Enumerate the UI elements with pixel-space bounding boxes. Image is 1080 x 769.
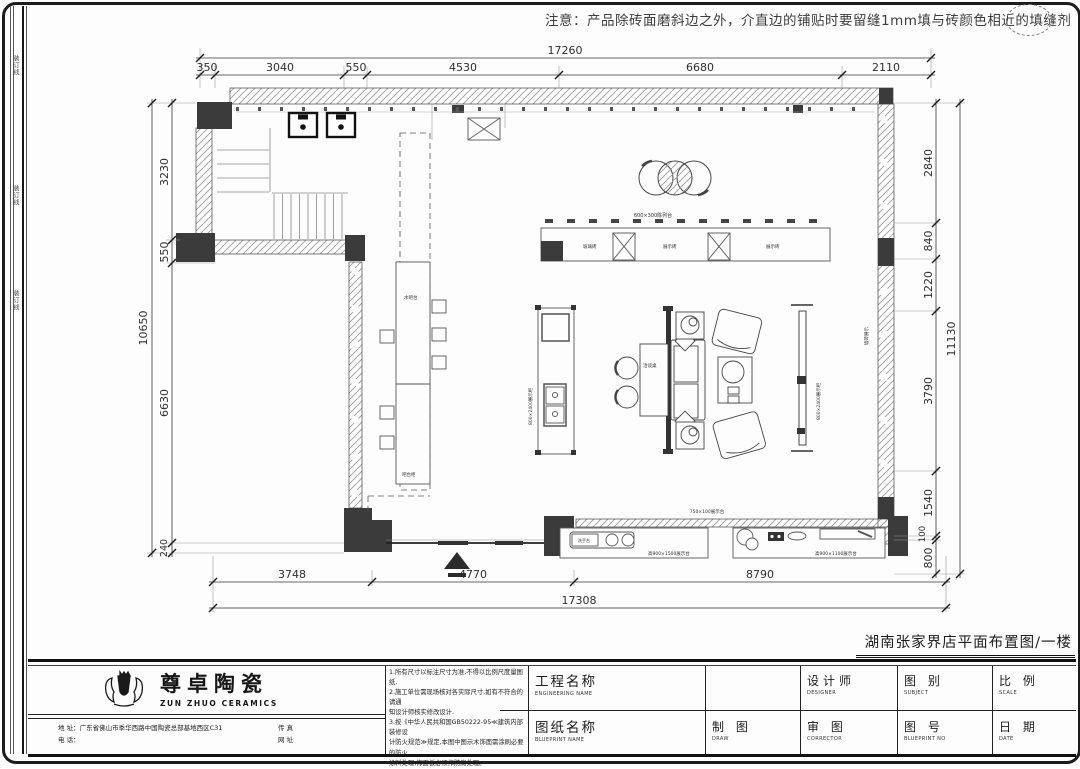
field-designer: 设计师 DESIGNER — [807, 672, 855, 696]
svg-text:350: 350 — [197, 61, 218, 74]
svg-text:550: 550 — [346, 61, 367, 74]
label-bottom-right: 高900×1100展示台 — [815, 550, 857, 557]
dim-top-overall: 17260 — [548, 44, 583, 57]
tall-display-cabinet — [535, 305, 576, 455]
label-sink-box: 洗手台 — [578, 537, 590, 543]
furniture-group — [615, 306, 766, 460]
label-water-bar: 水吧台 — [404, 294, 418, 301]
basin-display — [327, 113, 355, 137]
drawing-title: 湖南张家界店平面布置图/一楼 — [856, 631, 1075, 658]
svg-text:840: 840 — [922, 231, 935, 252]
svg-text:8790: 8790 — [746, 568, 774, 581]
label-counter-caption: 600×300陈列台 — [634, 212, 672, 219]
field-scale: 比 例 SCALE — [999, 672, 1039, 696]
svg-text:550: 550 — [158, 242, 171, 263]
label-tall-cabinet: 800×2400展示柜 — [527, 387, 534, 425]
field-date: 日 期 DATE — [999, 718, 1039, 742]
staircase — [217, 128, 348, 239]
svg-text:2110: 2110 — [872, 61, 900, 74]
field-project-name: 工程名称 ENGINEERING NAME — [535, 670, 597, 697]
basin-display — [289, 113, 317, 137]
dim-right-overall: 11130 — [945, 322, 958, 357]
company-address: 地 址：广东省佛山市季华西路中国陶瓷总部基地西区C31 电 话： — [58, 722, 222, 747]
entrance-arrow — [444, 552, 470, 569]
label-bottom-left: 高900×1500展示台 — [648, 550, 690, 557]
svg-text:1540: 1540 — [922, 489, 935, 517]
logo-text-en: ZUN ZHUO CERAMICS — [160, 699, 278, 708]
svg-text:1220: 1220 — [922, 271, 935, 299]
company-logo: 尊卓陶瓷 ZUN ZHUO CERAMICS — [98, 668, 278, 708]
svg-text:6630: 6630 — [158, 389, 171, 417]
svg-text:100: 100 — [918, 526, 928, 542]
floor-box — [468, 118, 500, 140]
field-blueprint-no: 图 号 BLUEPRINT NO — [904, 718, 946, 742]
label-bottom-strip: 750×100展示台 — [690, 508, 725, 515]
floor-plan: 水吧台 吧台柜 600×300陈列台 玻璃砖 展示砖 展示砖 800×2400展… — [0, 0, 1080, 630]
label-section1: 玻璃砖 — [583, 243, 597, 250]
logo-crest-icon — [98, 668, 150, 708]
svg-text:2840: 2840 — [922, 149, 935, 177]
field-corrector: 审 图 CORRECTOR — [807, 718, 847, 742]
label-wall-display: 墙砖展示 — [863, 327, 870, 345]
svg-text:4770: 4770 — [459, 568, 487, 581]
field-sheet-name: 图纸名称 BLUEPRINT NAME — [535, 716, 597, 743]
field-subject: 图 别 SUBJECT — [904, 672, 944, 696]
round-display-tables — [639, 161, 711, 195]
label-right-panel: 800×2400展示柜 — [815, 382, 822, 420]
svg-text:240: 240 — [159, 539, 170, 557]
svg-text:3748: 3748 — [278, 568, 306, 581]
label-section3: 展示砖 — [766, 243, 780, 250]
svg-text:3040: 3040 — [266, 61, 294, 74]
dim-bottom-overall: 17308 — [562, 594, 597, 607]
company-contact: 传 真 网 址 — [278, 722, 293, 747]
title-block: 尊卓陶瓷 ZUN ZHUO CERAMICS 地 址：广东省佛山市季华西路中国陶… — [28, 659, 1076, 757]
svg-text:3790: 3790 — [922, 377, 935, 405]
svg-text:6680: 6680 — [686, 61, 714, 74]
right-display-panel — [791, 305, 813, 451]
dim-left-overall: 10650 — [137, 311, 150, 346]
field-draw: 制 图 DRAW — [712, 718, 752, 742]
general-notes: 1.所有尺寸以标注尺寸为准,不得以比例尺度量图纸, 2.施工单位需现场核对各实际… — [389, 668, 525, 769]
label-desk: 洽谈桌 — [643, 362, 657, 369]
svg-text:4530: 4530 — [449, 61, 477, 74]
label-section2: 展示砖 — [663, 243, 677, 250]
logo-text-cn: 尊卓陶瓷 — [160, 668, 278, 698]
svg-text:3230: 3230 — [158, 158, 171, 186]
label-bar-cabinet: 吧台柜 — [402, 471, 416, 478]
display-counter — [541, 221, 830, 261]
svg-text:800: 800 — [922, 548, 935, 569]
